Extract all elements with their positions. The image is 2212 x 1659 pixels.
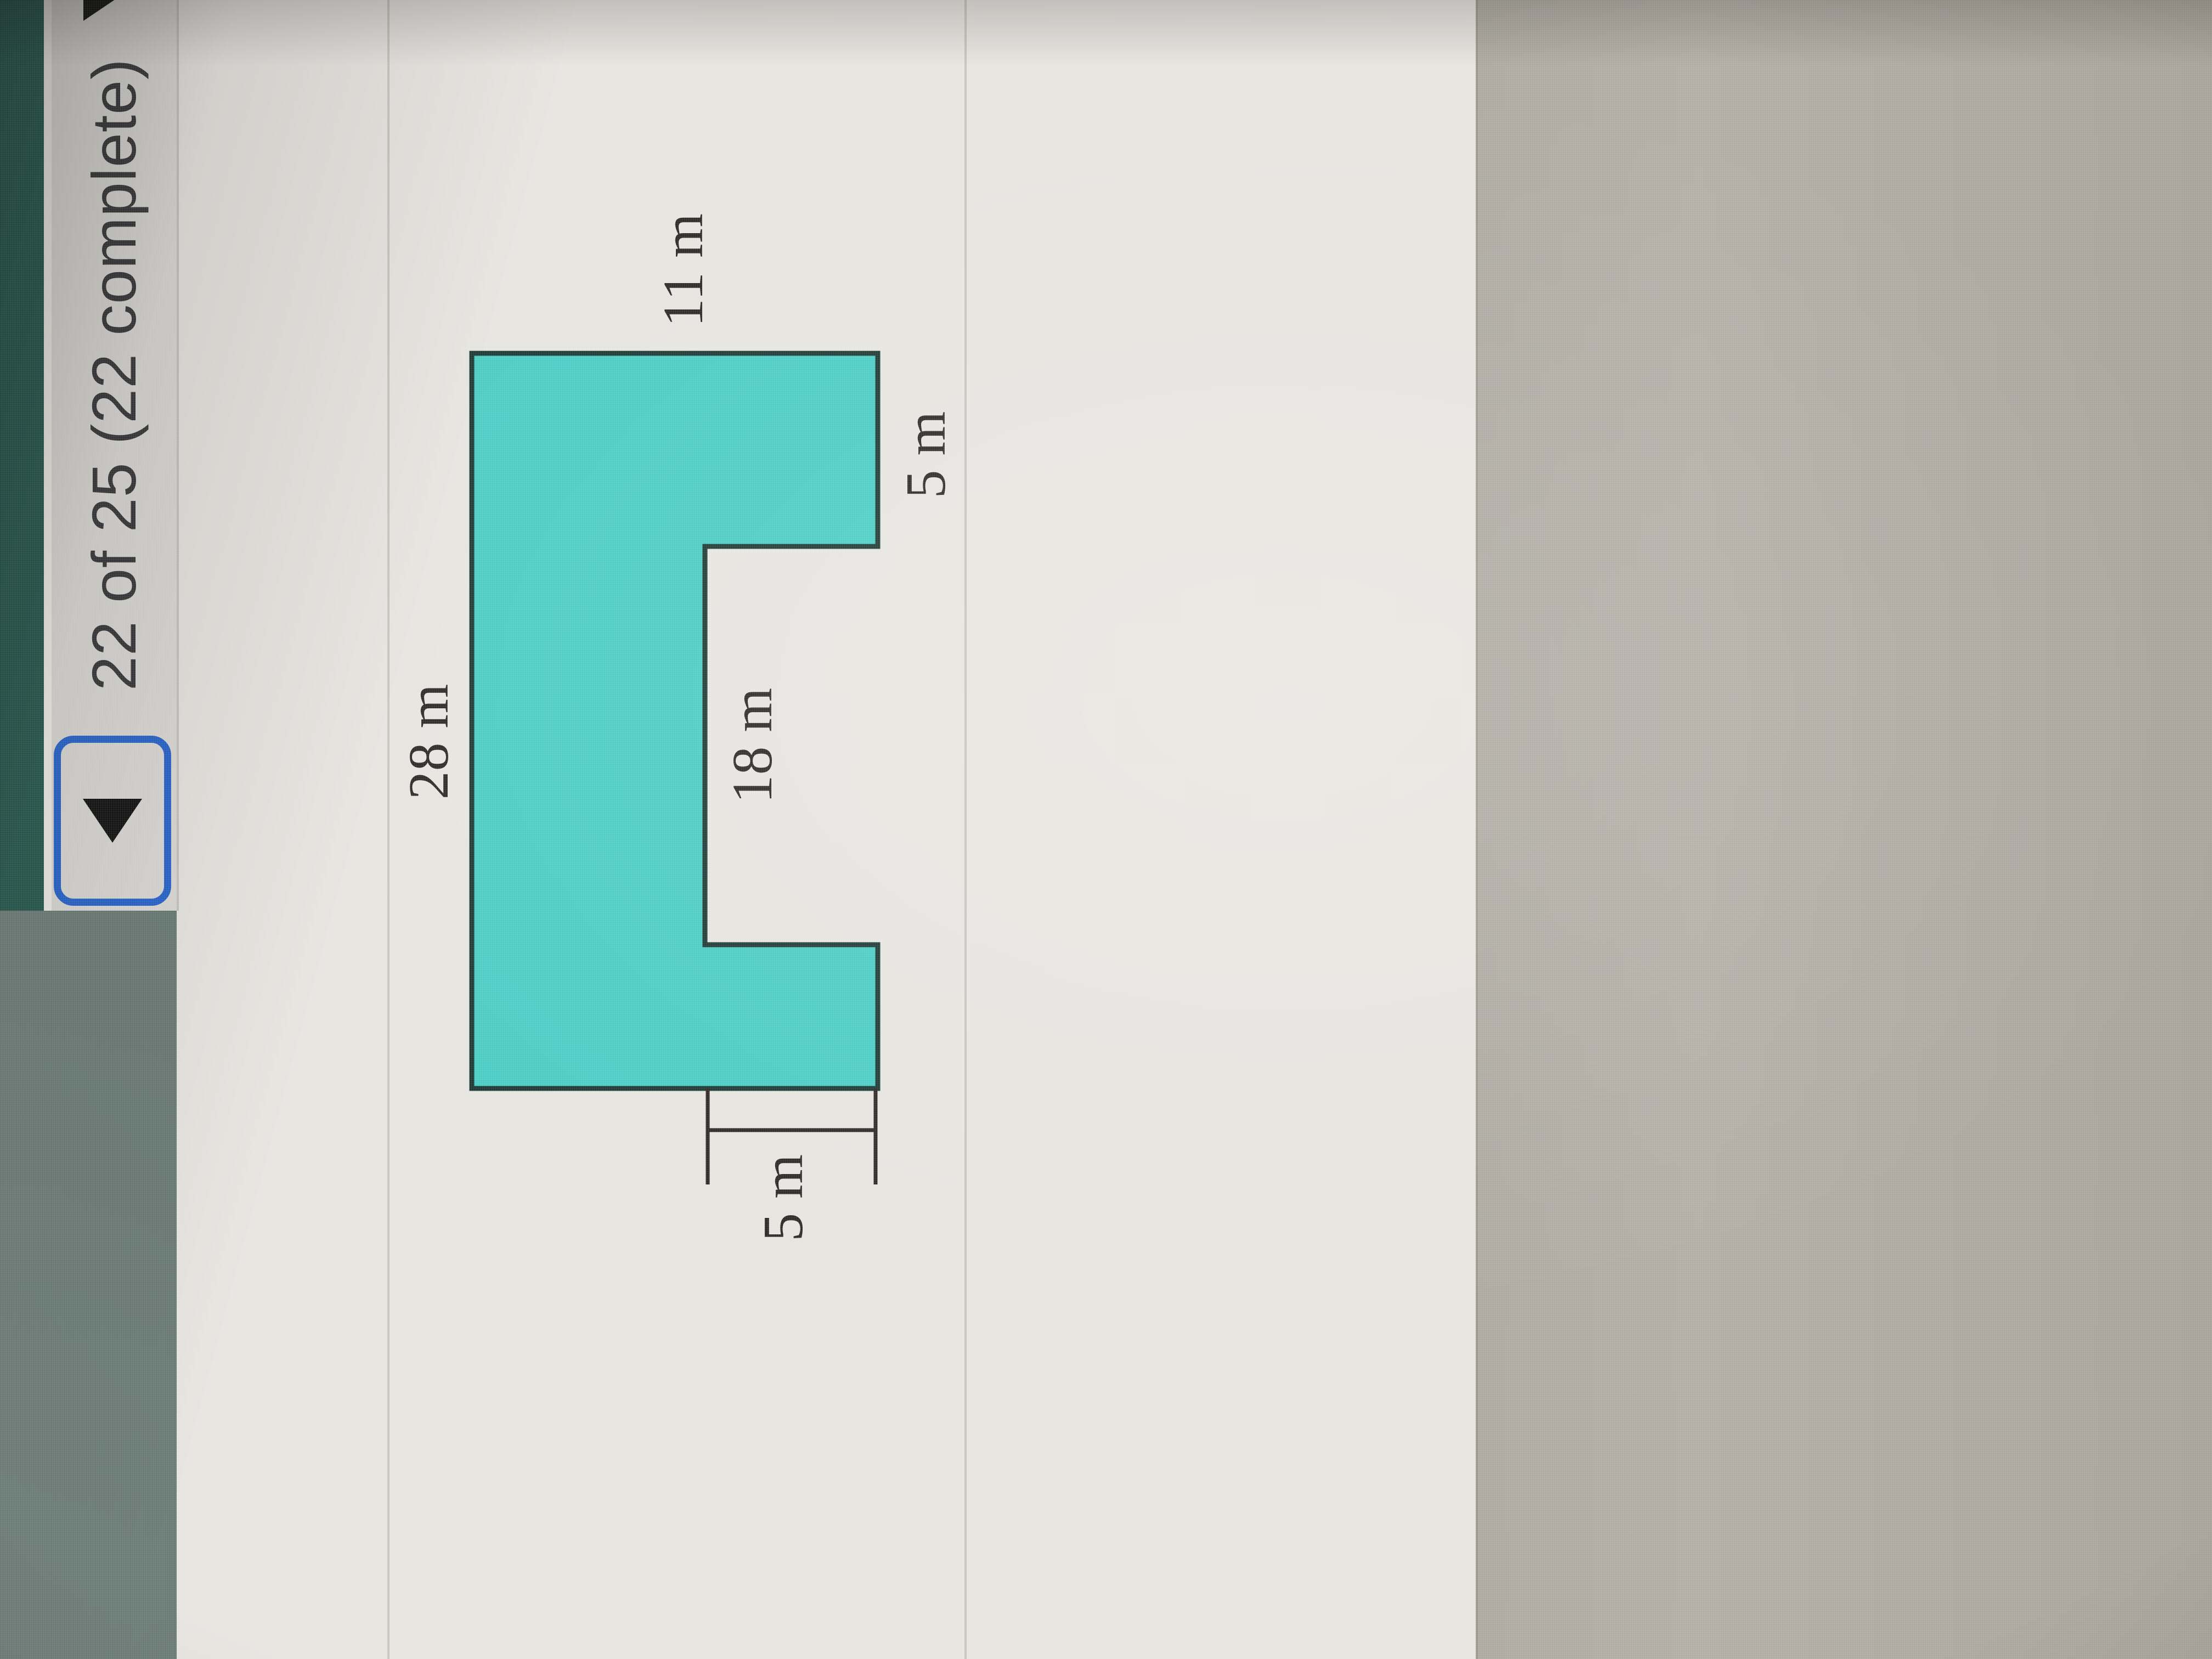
top-teal-strip — [0, 0, 44, 911]
figure-label-notch: 18 m — [720, 625, 785, 866]
progress-dropdown-caret-icon[interactable] — [83, 0, 134, 21]
content-divider-top — [387, 0, 390, 1659]
figure-label-right-leg: 5 m — [893, 334, 958, 575]
figure-label-right: 11 m — [651, 97, 716, 327]
question-progress-text: 22 of 25 (22 complete) — [52, 58, 177, 691]
figure-label-top: 28 m — [396, 621, 461, 862]
prev-arrow-icon — [83, 799, 142, 843]
previous-question-button[interactable] — [54, 736, 171, 906]
page-lower-gray-area — [1476, 0, 2212, 1659]
photo-of-screen: 22 of 25 (22 complete) 28 m 11 m 5 m 18 … — [0, 0, 2212, 1659]
homework-app-screen: 22 of 25 (22 complete) 28 m 11 m 5 m 18 … — [0, 0, 2212, 1659]
content-divider-below-figure — [964, 0, 967, 1659]
top-bar-left-block — [0, 911, 177, 1659]
figure-label-left-leg: 5 m — [751, 1154, 816, 1319]
header-separator-line — [44, 0, 52, 911]
figure-shape-polygon — [472, 353, 878, 1088]
